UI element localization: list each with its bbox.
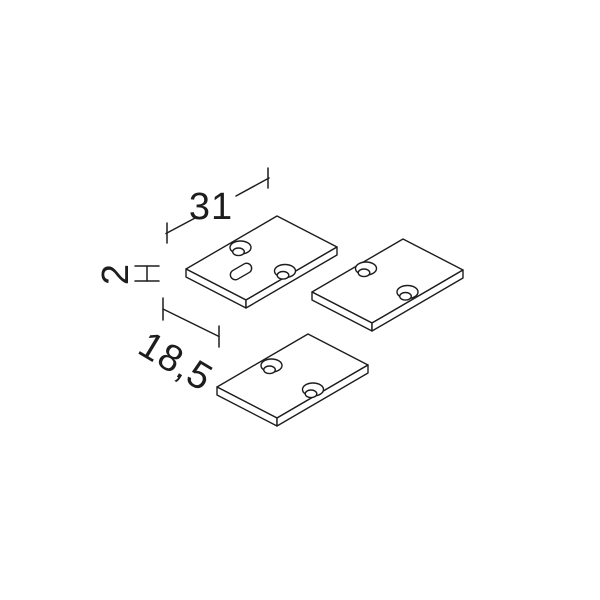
end-cap-plate-3	[217, 334, 368, 426]
technical-drawing-canvas: 31 2 18,5	[0, 0, 600, 600]
dim-length-label: 31	[189, 186, 233, 228]
plate2-hole2-bore	[400, 293, 412, 301]
dim-thickness-lines	[135, 266, 159, 281]
dim-depth-label: 18,5	[131, 324, 219, 400]
plate2-hole1-bore	[358, 269, 370, 277]
plate3-hole1-bore	[264, 366, 276, 374]
dim-depth-line	[163, 309, 219, 337]
plate1-hole1-bore	[233, 248, 245, 256]
plate3-hole2-bore	[305, 390, 317, 398]
dim-thickness-label: 2	[95, 263, 137, 285]
dim-length-line-b	[236, 178, 269, 196]
isometric-dimension-drawing: 31 2 18,5	[0, 0, 600, 600]
plate1-hole2-bore	[277, 272, 289, 280]
